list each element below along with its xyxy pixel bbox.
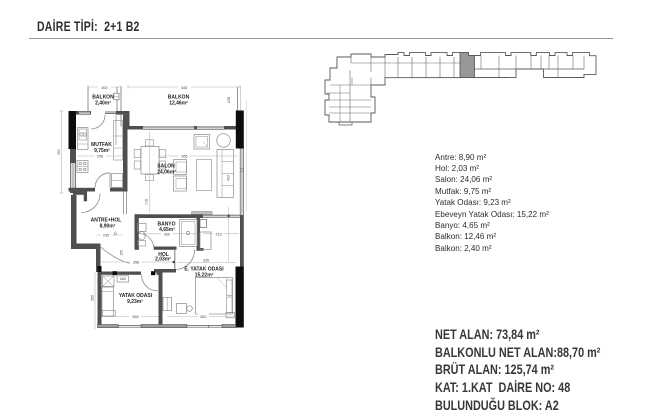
svg-text:2,03m²: 2,03m² xyxy=(155,257,171,263)
svg-text:345: 345 xyxy=(181,86,187,90)
svg-text:12,46m²: 12,46m² xyxy=(169,101,188,107)
svg-text:235: 235 xyxy=(103,234,109,238)
svg-text:710: 710 xyxy=(145,199,149,205)
svg-text:210: 210 xyxy=(216,232,222,236)
svg-text:360: 360 xyxy=(164,233,170,237)
svg-text:360: 360 xyxy=(200,315,206,319)
svg-text:30: 30 xyxy=(114,232,118,236)
svg-text:2,40m²: 2,40m² xyxy=(95,101,111,107)
svg-text:8,90m²: 8,90m² xyxy=(100,224,116,230)
svg-text:228: 228 xyxy=(227,97,231,103)
svg-text:433: 433 xyxy=(227,175,231,181)
svg-text:300: 300 xyxy=(101,86,107,90)
svg-text:350: 350 xyxy=(91,295,95,301)
svg-text:165: 165 xyxy=(120,250,124,256)
svg-text:358: 358 xyxy=(132,315,138,319)
svg-text:565: 565 xyxy=(181,155,187,159)
svg-text:9,23m²: 9,23m² xyxy=(127,299,143,305)
svg-text:358: 358 xyxy=(133,261,139,265)
svg-text:250: 250 xyxy=(57,149,61,155)
svg-text:335: 335 xyxy=(203,258,209,262)
svg-text:258: 258 xyxy=(97,155,103,159)
svg-text:24,06m²: 24,06m² xyxy=(157,170,176,176)
